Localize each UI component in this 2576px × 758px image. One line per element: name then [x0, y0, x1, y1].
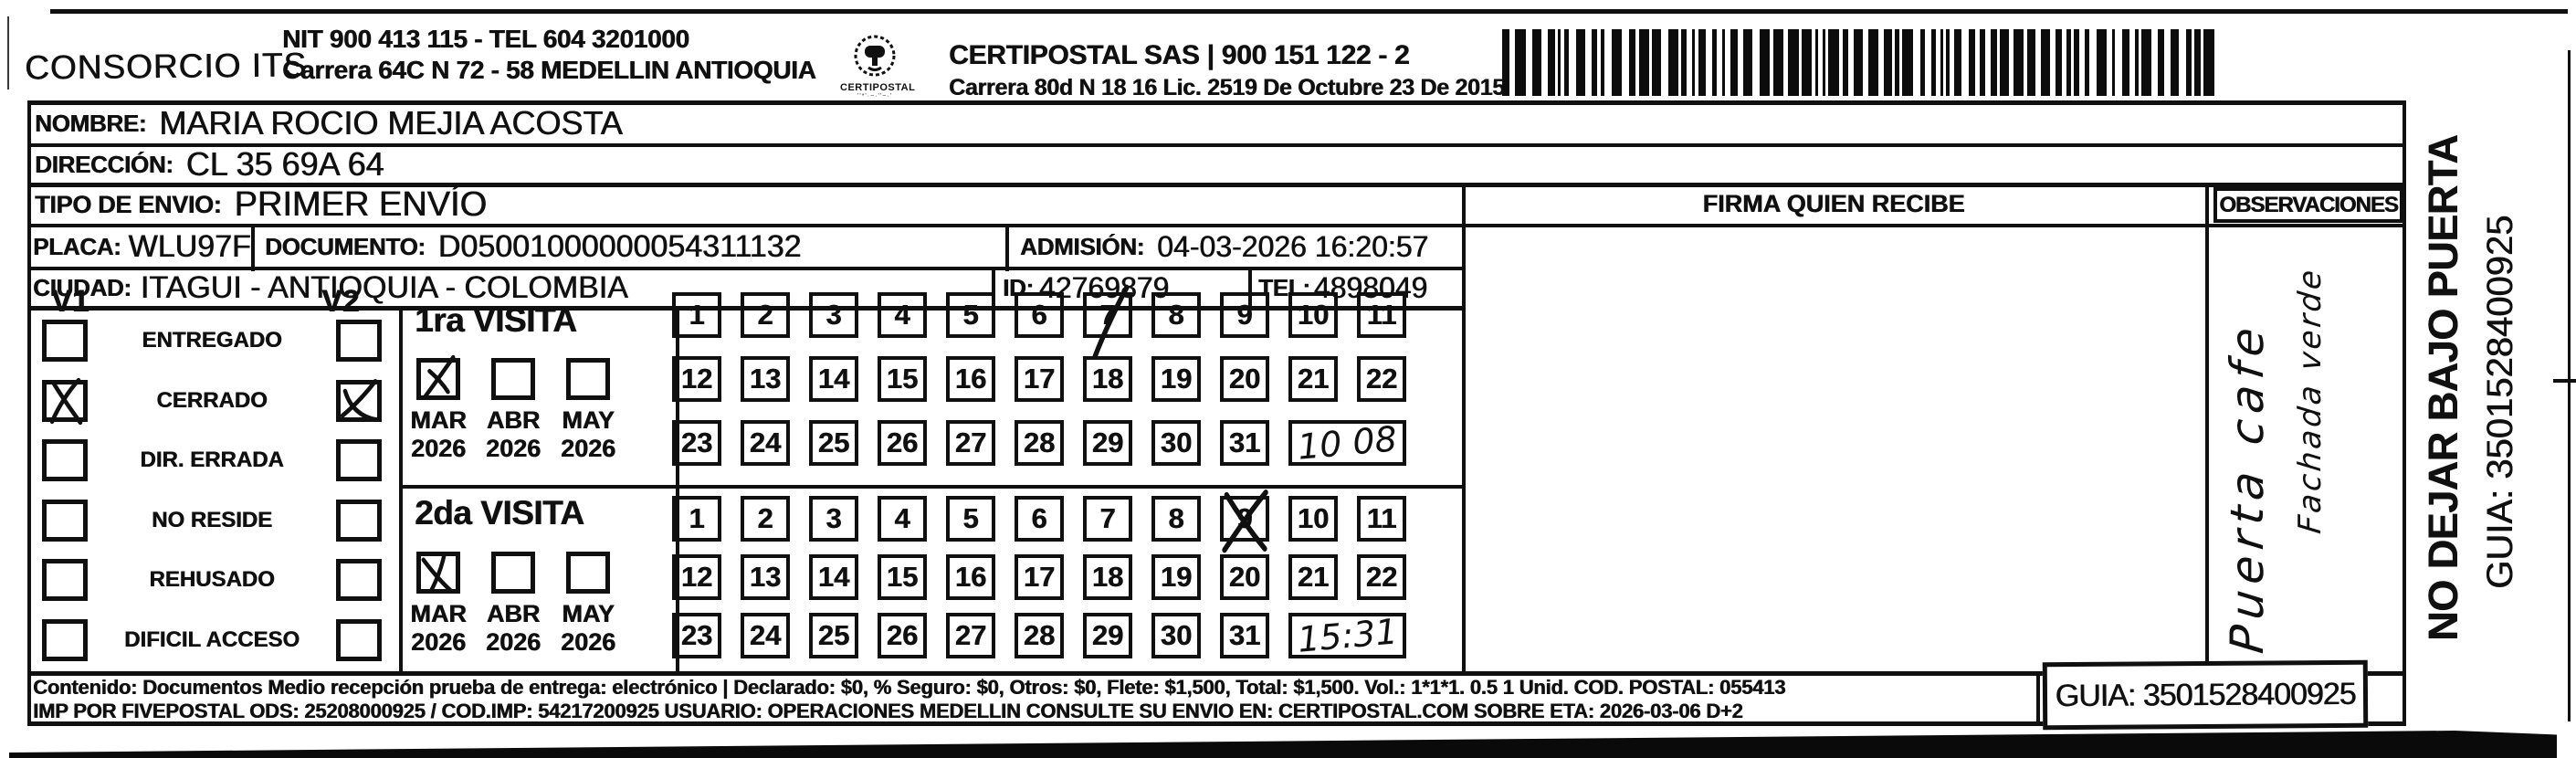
observaciones-header: OBSERVACIONES [2219, 193, 2398, 218]
day-cell: 18 [1083, 554, 1132, 600]
barcode-bar [1854, 29, 1863, 96]
day-cell: 14 [809, 554, 858, 600]
day-cell: 12 [672, 356, 721, 402]
day-cell: 17 [1015, 554, 1064, 600]
month-checkbox [416, 552, 460, 594]
barcode-bar [1954, 29, 1961, 96]
day-cell: 29 [1083, 420, 1132, 466]
day-cell: 28 [1015, 613, 1064, 658]
status-option-row: ENTREGADO [42, 320, 382, 362]
handwritten-time-box: 10 08 [1288, 420, 1406, 466]
barcode-bar [1760, 29, 1770, 96]
day-cell: 30 [1151, 420, 1201, 466]
barcode-bar [2194, 29, 2201, 96]
day-cell: 15 [878, 554, 927, 600]
scan-edge-artifact [9, 731, 2557, 758]
day-cell: 16 [946, 554, 995, 600]
day-cell: 9 [1220, 292, 1269, 338]
handwritten-time: 10 08 [1296, 418, 1398, 467]
barcode-bar [1564, 29, 1569, 96]
placa-label: PLACA: [33, 233, 121, 261]
day-cell: 3 [809, 496, 858, 542]
barcode-bar [1895, 29, 1899, 96]
day-cell: 24 [741, 613, 790, 658]
barcode-bar [1548, 29, 1555, 96]
day-cell: 20 [1220, 554, 1269, 600]
barcode-bar [2171, 29, 2179, 96]
barcode-bar [1629, 29, 1635, 96]
table-line [251, 224, 255, 271]
documento-value: D05001000000054311132 [438, 229, 802, 265]
certipostal-license-line: Carrera 80d N 18 16 Lic. 2519 De Octubre… [949, 75, 1505, 101]
company-address-line: Carrera 64C N 72 - 58 MEDELLIN ANTIOQUIA [282, 55, 815, 86]
month-year: 2026 [411, 435, 466, 463]
month-year: 2026 [561, 435, 615, 463]
table-line [399, 306, 403, 676]
scanned-delivery-slip: CONSORCIO ITS NIT 900 413 115 - TEL 604 … [0, 0, 2576, 758]
handwritten-x-mark [336, 376, 382, 426]
day-cell: 12 [672, 554, 721, 600]
barcode-bar [1712, 29, 1717, 96]
day-cell: 14 [809, 356, 858, 402]
admision-value: 04-03-2026 16:20:57 [1157, 230, 1428, 264]
day-cell: 16 [946, 356, 995, 402]
direccion-value: CL 35 69A 64 [186, 145, 384, 184]
month-label: ABR [487, 600, 541, 628]
tipo-envio-row: TIPO DE ENVIO: PRIMER ENVÍO [35, 185, 487, 224]
placa-cell: PLACA: WLU97F [33, 226, 251, 267]
month-label: MAY [562, 406, 615, 435]
barcode-bar [1980, 29, 1985, 96]
barcode-bar [1902, 29, 1913, 96]
side-warning-text: NO DEJAR BAJO PUERTA [2420, 135, 2467, 641]
barcode [1502, 29, 2225, 96]
barcode-bar [2122, 29, 2129, 96]
day-cell: 20 [1220, 356, 1269, 402]
day-cell: 19 [1151, 554, 1201, 600]
table-line [27, 143, 2406, 147]
month-checkbox [416, 358, 460, 400]
admision-cell: ADMISIÓN: 04-03-2026 16:20:57 [1020, 226, 1428, 267]
handwritten-x-mark [42, 376, 88, 426]
day-cell: 25 [809, 420, 858, 466]
placa-value: WLU97F [128, 229, 250, 265]
barcode-bar [1601, 29, 1604, 96]
day-cell: 31 [1220, 613, 1269, 658]
handwritten-time-box: 15:31 [1288, 613, 1406, 658]
day-cell: 24 [741, 420, 790, 466]
barcode-bar [1652, 29, 1661, 96]
day-cell: 6 [1015, 292, 1064, 338]
handwritten-day-mark [1081, 285, 1134, 349]
barcode-bar [2203, 29, 2214, 96]
certipostal-info-block: CERTIPOSTAL SAS | 900 151 122 - 2 Carrer… [949, 40, 1505, 101]
barcode-bar [2097, 29, 2107, 96]
day-cell: 21 [1288, 554, 1338, 600]
day-cell: 31 [1220, 420, 1269, 466]
month-option: MAR 2026 [409, 552, 468, 657]
day-cell: 29 [1083, 613, 1132, 658]
barcode-bar [1639, 29, 1649, 96]
day-cell: 11 [1357, 496, 1406, 542]
month-label: MAR [410, 600, 467, 628]
day-cell: 9 [1220, 496, 1269, 542]
barcode-bar [1802, 29, 1812, 96]
day-cell: 25 [809, 613, 858, 658]
barcode-bar [1931, 29, 1936, 96]
barcode-bar [2013, 29, 2024, 96]
barcode-bar [2000, 29, 2009, 96]
tipo-envio-label: TIPO DE ENVIO: [35, 191, 221, 219]
month-year: 2026 [411, 628, 466, 657]
status-option-label: DIR. ERRADA [88, 447, 336, 473]
v2-checkbox [336, 439, 382, 481]
month-year: 2026 [486, 628, 541, 657]
month-year: 2026 [561, 628, 615, 657]
day-cell: 7 [1083, 496, 1132, 542]
firma-header: FIRMA QUIEN RECIBE [1462, 190, 2205, 218]
v1-checkbox [42, 559, 88, 601]
barcode-bar [2186, 29, 2192, 96]
barcode-bar [1692, 29, 1695, 96]
v2-checkbox [336, 559, 382, 601]
barcode-bar [1969, 29, 1975, 96]
barcode-bar [1920, 29, 1925, 96]
status-option-label: REHUSADO [88, 567, 336, 593]
day-cell: 30 [1151, 613, 1201, 658]
day-cell: 26 [878, 613, 927, 658]
barcode-bar [1743, 29, 1752, 96]
barcode-bar [2085, 29, 2089, 96]
observaciones-handwriting-line1: Puerta cafe [2221, 319, 2274, 656]
month-checkbox [566, 358, 610, 400]
day-cell: 11 [1357, 292, 1406, 338]
guia-number-box: GUIA: 3501528400925 [2043, 660, 2369, 730]
day-cell: 3 [809, 292, 858, 338]
day-cell: 4 [878, 496, 927, 542]
month-option: MAY 2026 [559, 552, 617, 657]
day-cell: 18 [1083, 356, 1132, 402]
documento-label: DOCUMENTO: [265, 233, 426, 261]
barcode-bar [2141, 29, 2151, 96]
observaciones-header-box: OBSERVACIONES [2213, 187, 2403, 223]
day-cell: 13 [741, 554, 790, 600]
day-cell: 26 [878, 420, 927, 466]
certipostal-name-line: CERTIPOSTAL SAS | 900 151 122 - 2 [949, 40, 1505, 71]
day-cell: 27 [946, 420, 995, 466]
barcode-bar [2027, 29, 2035, 96]
company-name: CONSORCIO ITS [25, 46, 307, 87]
barcode-bar [1612, 29, 1622, 96]
barcode-bar [1515, 29, 1526, 96]
month-checkbox [491, 358, 535, 400]
day-cell: 23 [672, 420, 721, 466]
barcode-bar [1698, 29, 1706, 96]
status-option-label: NO RESIDE [88, 508, 336, 533]
day-cell: 22 [1357, 356, 1406, 402]
v2-checkbox [336, 320, 382, 362]
day-cell: 21 [1288, 356, 1338, 402]
table-line [1005, 224, 1009, 271]
day-cell: 2 [741, 496, 790, 542]
company-nit-line: NIT 900 413 115 - TEL 604 3201000 [282, 24, 815, 55]
day-cell: 10 [1288, 496, 1338, 542]
barcode-bar [1502, 29, 1509, 96]
nombre-row: NOMBRE: MARIA ROCIO MEJIA ACOSTA [35, 104, 623, 142]
documento-cell: DOCUMENTO: D05001000000054311132 [265, 226, 801, 267]
day-cell: 13 [741, 356, 790, 402]
status-option-row: DIFICIL ACCESO [42, 619, 382, 661]
day-cell: 8 [1151, 292, 1201, 338]
visit1-day-grid: 1234567891011121314151617181920212223242… [672, 292, 1406, 466]
table-line [2036, 671, 2040, 726]
barcode-bar [1730, 29, 1738, 96]
day-cell: 8 [1151, 496, 1201, 542]
logo-caption: CERTIPOSTAL [840, 82, 909, 93]
logo-fineprint: ''*'·~·''~·' [840, 93, 909, 100]
day-cell: 7 [1083, 292, 1132, 338]
barcode-bar [1532, 29, 1541, 96]
handwritten-day-mark [1218, 489, 1271, 553]
day-cell: 28 [1015, 420, 1064, 466]
barcode-bar [2066, 29, 2071, 96]
status-option-label: CERRADO [88, 388, 336, 414]
top-border-line [50, 9, 2568, 14]
v1-checkbox [42, 619, 88, 661]
barcode-bar [1884, 29, 1892, 96]
v2-header: V2 [321, 284, 360, 320]
barcode-bar [1788, 29, 1799, 96]
barcode-bar [1823, 29, 1825, 96]
barcode-bar [2158, 29, 2164, 96]
month-option: MAY 2026 [559, 358, 617, 463]
observaciones-handwriting-line2: Fachada verde [2292, 266, 2329, 535]
day-cell: 22 [1357, 554, 1406, 600]
status-option-row: REHUSADO [42, 559, 382, 601]
nombre-value: MARIA ROCIO MEJIA ACOSTA [159, 104, 622, 142]
handwritten-x-mark [416, 354, 460, 404]
v1-checkbox [42, 439, 88, 481]
month-option: MAR 2026 [409, 358, 468, 463]
day-cell: 27 [946, 613, 995, 658]
status-option-label: DIFICIL ACCESO [88, 627, 336, 653]
table-line [399, 485, 1466, 489]
visit2-months: MAR 2026 ABR 2026 MAY [409, 552, 617, 657]
certipostal-logo: CERTIPOSTAL ''*'·~·''~·' [840, 33, 909, 100]
day-cell: 4 [878, 292, 927, 338]
day-cell: 10 [1288, 292, 1338, 338]
barcode-bar [1668, 29, 1678, 96]
v2-checkbox [336, 619, 382, 661]
barcode-bar [1576, 29, 1585, 96]
footer-import-line: IMP POR FIVEPOSTAL ODS: 25208000925 / CO… [33, 700, 1742, 723]
v2-checkbox [336, 380, 382, 422]
firma-signature-area [1466, 227, 2205, 671]
barcode-bar [1828, 29, 1839, 96]
month-label: ABR [487, 406, 541, 435]
page-right-edge-line [2568, 50, 2571, 721]
status-option-row: DIR. ERRADA [42, 439, 382, 481]
direccion-row: DIRECCIÓN: CL 35 69A 64 [35, 146, 384, 183]
visit1-months: MAR 2026 ABR 2026 MAY [409, 358, 617, 463]
day-cell: 1 [672, 496, 721, 542]
table-line [2205, 183, 2209, 676]
handwritten-time: 15:31 [1296, 611, 1399, 659]
month-year: 2026 [486, 435, 541, 463]
barcode-bar [2074, 29, 2079, 96]
v1-checkbox [42, 380, 88, 422]
admision-label: ADMISIÓN: [1020, 233, 1144, 261]
status-option-row: CERRADO [42, 380, 382, 422]
day-cell: 5 [946, 496, 995, 542]
barcode-bar [1592, 29, 1597, 96]
tipo-envio-value: PRIMER ENVÍO [234, 185, 487, 225]
month-option: ABR 2026 [484, 552, 542, 657]
barcode-bar [1815, 29, 1818, 96]
handwritten-x-mark [416, 548, 460, 597]
status-option-row: NO RESIDE [42, 500, 382, 542]
barcode-bar [1722, 29, 1725, 96]
day-cell: 19 [1151, 356, 1201, 402]
logo-stamp-icon [846, 33, 903, 82]
day-cell: 1 [672, 292, 721, 338]
barcode-bar [1946, 29, 1950, 96]
nombre-label: NOMBRE: [35, 110, 146, 138]
visit2-title: 2da VISITA [415, 494, 584, 532]
day-cell: 2 [741, 292, 790, 338]
day-cell: 5 [946, 292, 995, 338]
day-cell: 23 [672, 613, 721, 658]
status-option-label: ENTREGADO [88, 328, 336, 353]
scan-artifact [2553, 379, 2576, 383]
barcode-bar [1681, 29, 1687, 96]
barcode-bar [1773, 29, 1783, 96]
barcode-bar [1558, 29, 1561, 96]
month-option: ABR 2026 [484, 358, 542, 463]
barcode-bar [2112, 29, 2115, 96]
month-checkbox [491, 552, 535, 594]
month-checkbox [566, 552, 610, 594]
barcode-bar [2135, 29, 2139, 96]
barcode-bar [1940, 29, 1943, 96]
day-cell: 17 [1015, 356, 1064, 402]
delivery-status-options: ENTREGADO CERRADO [42, 320, 382, 661]
month-label: MAR [410, 406, 467, 435]
barcode-bar [2056, 29, 2062, 96]
v1-checkbox [42, 320, 88, 362]
guia-number: GUIA: 3501528400925 [2055, 676, 2355, 713]
day-cell: 15 [878, 356, 927, 402]
barcode-bar [1868, 29, 1878, 96]
visit2-day-grid: 1234567891011121314151617181920212223242… [672, 496, 1406, 658]
footer-content-line: Contenido: Documentos Medio recepción pr… [33, 676, 1785, 700]
barcode-bar [2041, 29, 2050, 96]
direccion-label: DIRECCIÓN: [35, 151, 173, 179]
barcode-bar [1843, 29, 1848, 96]
visit1-title: 1ra VISITA [415, 301, 576, 340]
scan-artifact [7, 16, 9, 89]
v1-header: V1 [51, 284, 89, 320]
table-line [27, 100, 31, 726]
side-guia-number: GUIA: 3501528400925 [2480, 216, 2521, 589]
company-contact-block: NIT 900 413 115 - TEL 604 3201000 Carrer… [282, 24, 815, 86]
day-cell: 6 [1015, 496, 1064, 542]
v1-checkbox [42, 500, 88, 542]
barcode-bar [1991, 29, 1997, 96]
month-label: MAY [562, 600, 615, 628]
v2-checkbox [336, 500, 382, 542]
